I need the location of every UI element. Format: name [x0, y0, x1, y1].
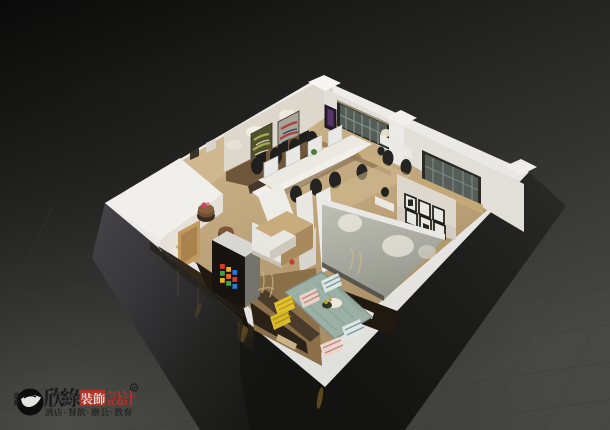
- svg-text:R: R: [132, 386, 136, 392]
- svg-text:绿: 绿: [14, 398, 21, 407]
- svg-text:欣: 欣: [14, 391, 21, 400]
